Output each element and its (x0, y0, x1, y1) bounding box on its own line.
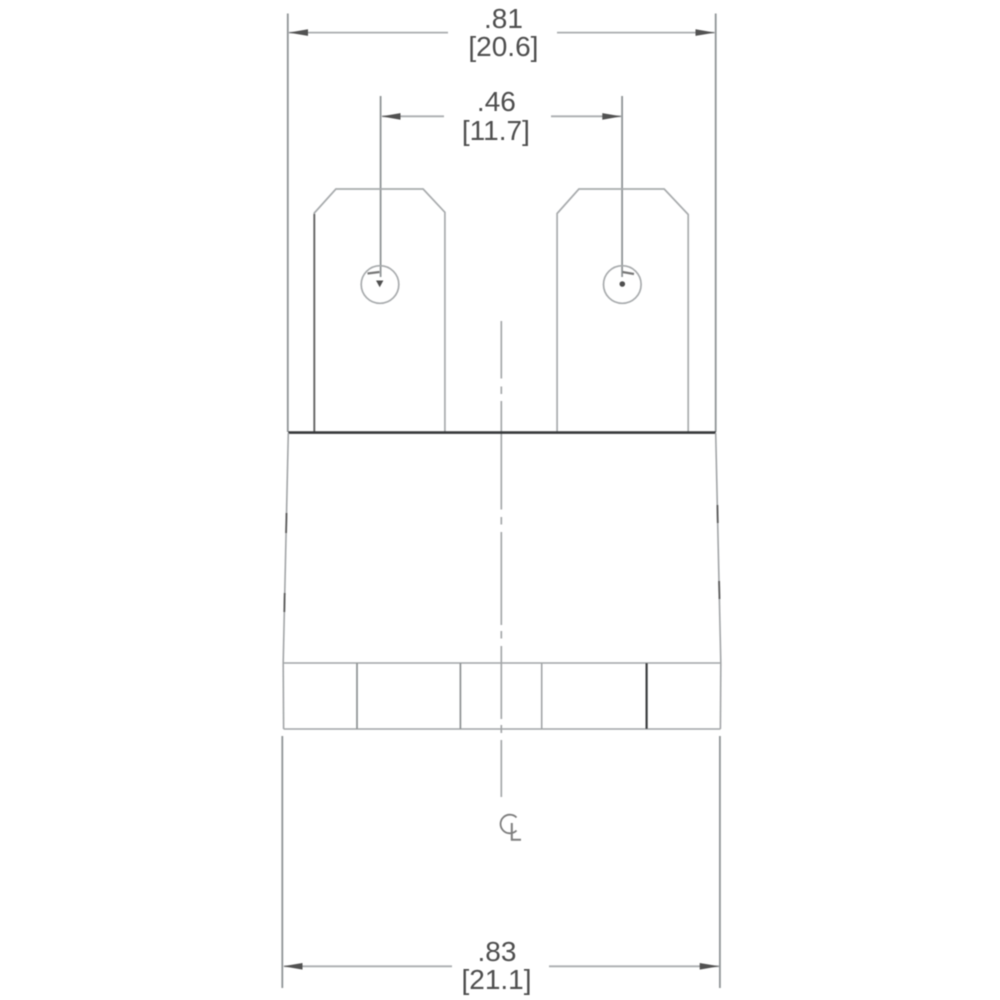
svg-text:[20.6]: [20.6] (468, 31, 538, 62)
svg-text:.83: .83 (478, 936, 517, 967)
svg-text:.81: .81 (484, 3, 523, 34)
svg-text:[21.1]: [21.1] (461, 964, 531, 995)
svg-text:[11.7]: [11.7] (462, 115, 530, 146)
svg-text:.46: .46 (477, 86, 516, 117)
